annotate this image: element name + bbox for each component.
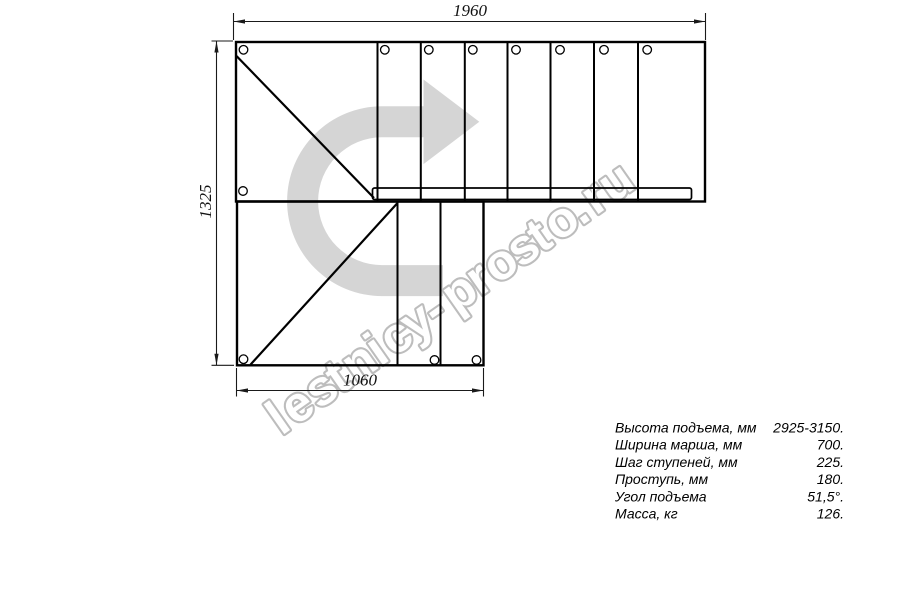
svg-text:Масса, кг: Масса, кг (615, 506, 678, 522)
svg-text:180.: 180. (817, 471, 844, 487)
svg-text:1325: 1325 (196, 185, 215, 219)
svg-text:Проступь, мм: Проступь, мм (615, 471, 709, 487)
svg-text:126.: 126. (817, 506, 844, 522)
svg-text:Шаг ступеней, мм: Шаг ступеней, мм (615, 454, 738, 470)
svg-text:Угол подъема: Угол подъема (614, 488, 707, 504)
svg-text:225.: 225. (816, 454, 844, 470)
svg-text:1060: 1060 (343, 371, 378, 390)
svg-text:Высота подъема, мм: Высота подъема, мм (615, 420, 757, 436)
svg-text:2925-3150.: 2925-3150. (772, 420, 844, 436)
svg-text:Ширина марша, мм: Ширина марша, мм (615, 437, 743, 453)
svg-text:51,5°.: 51,5°. (807, 488, 844, 504)
svg-text:1960: 1960 (453, 1, 488, 20)
svg-text:700.: 700. (817, 437, 844, 453)
